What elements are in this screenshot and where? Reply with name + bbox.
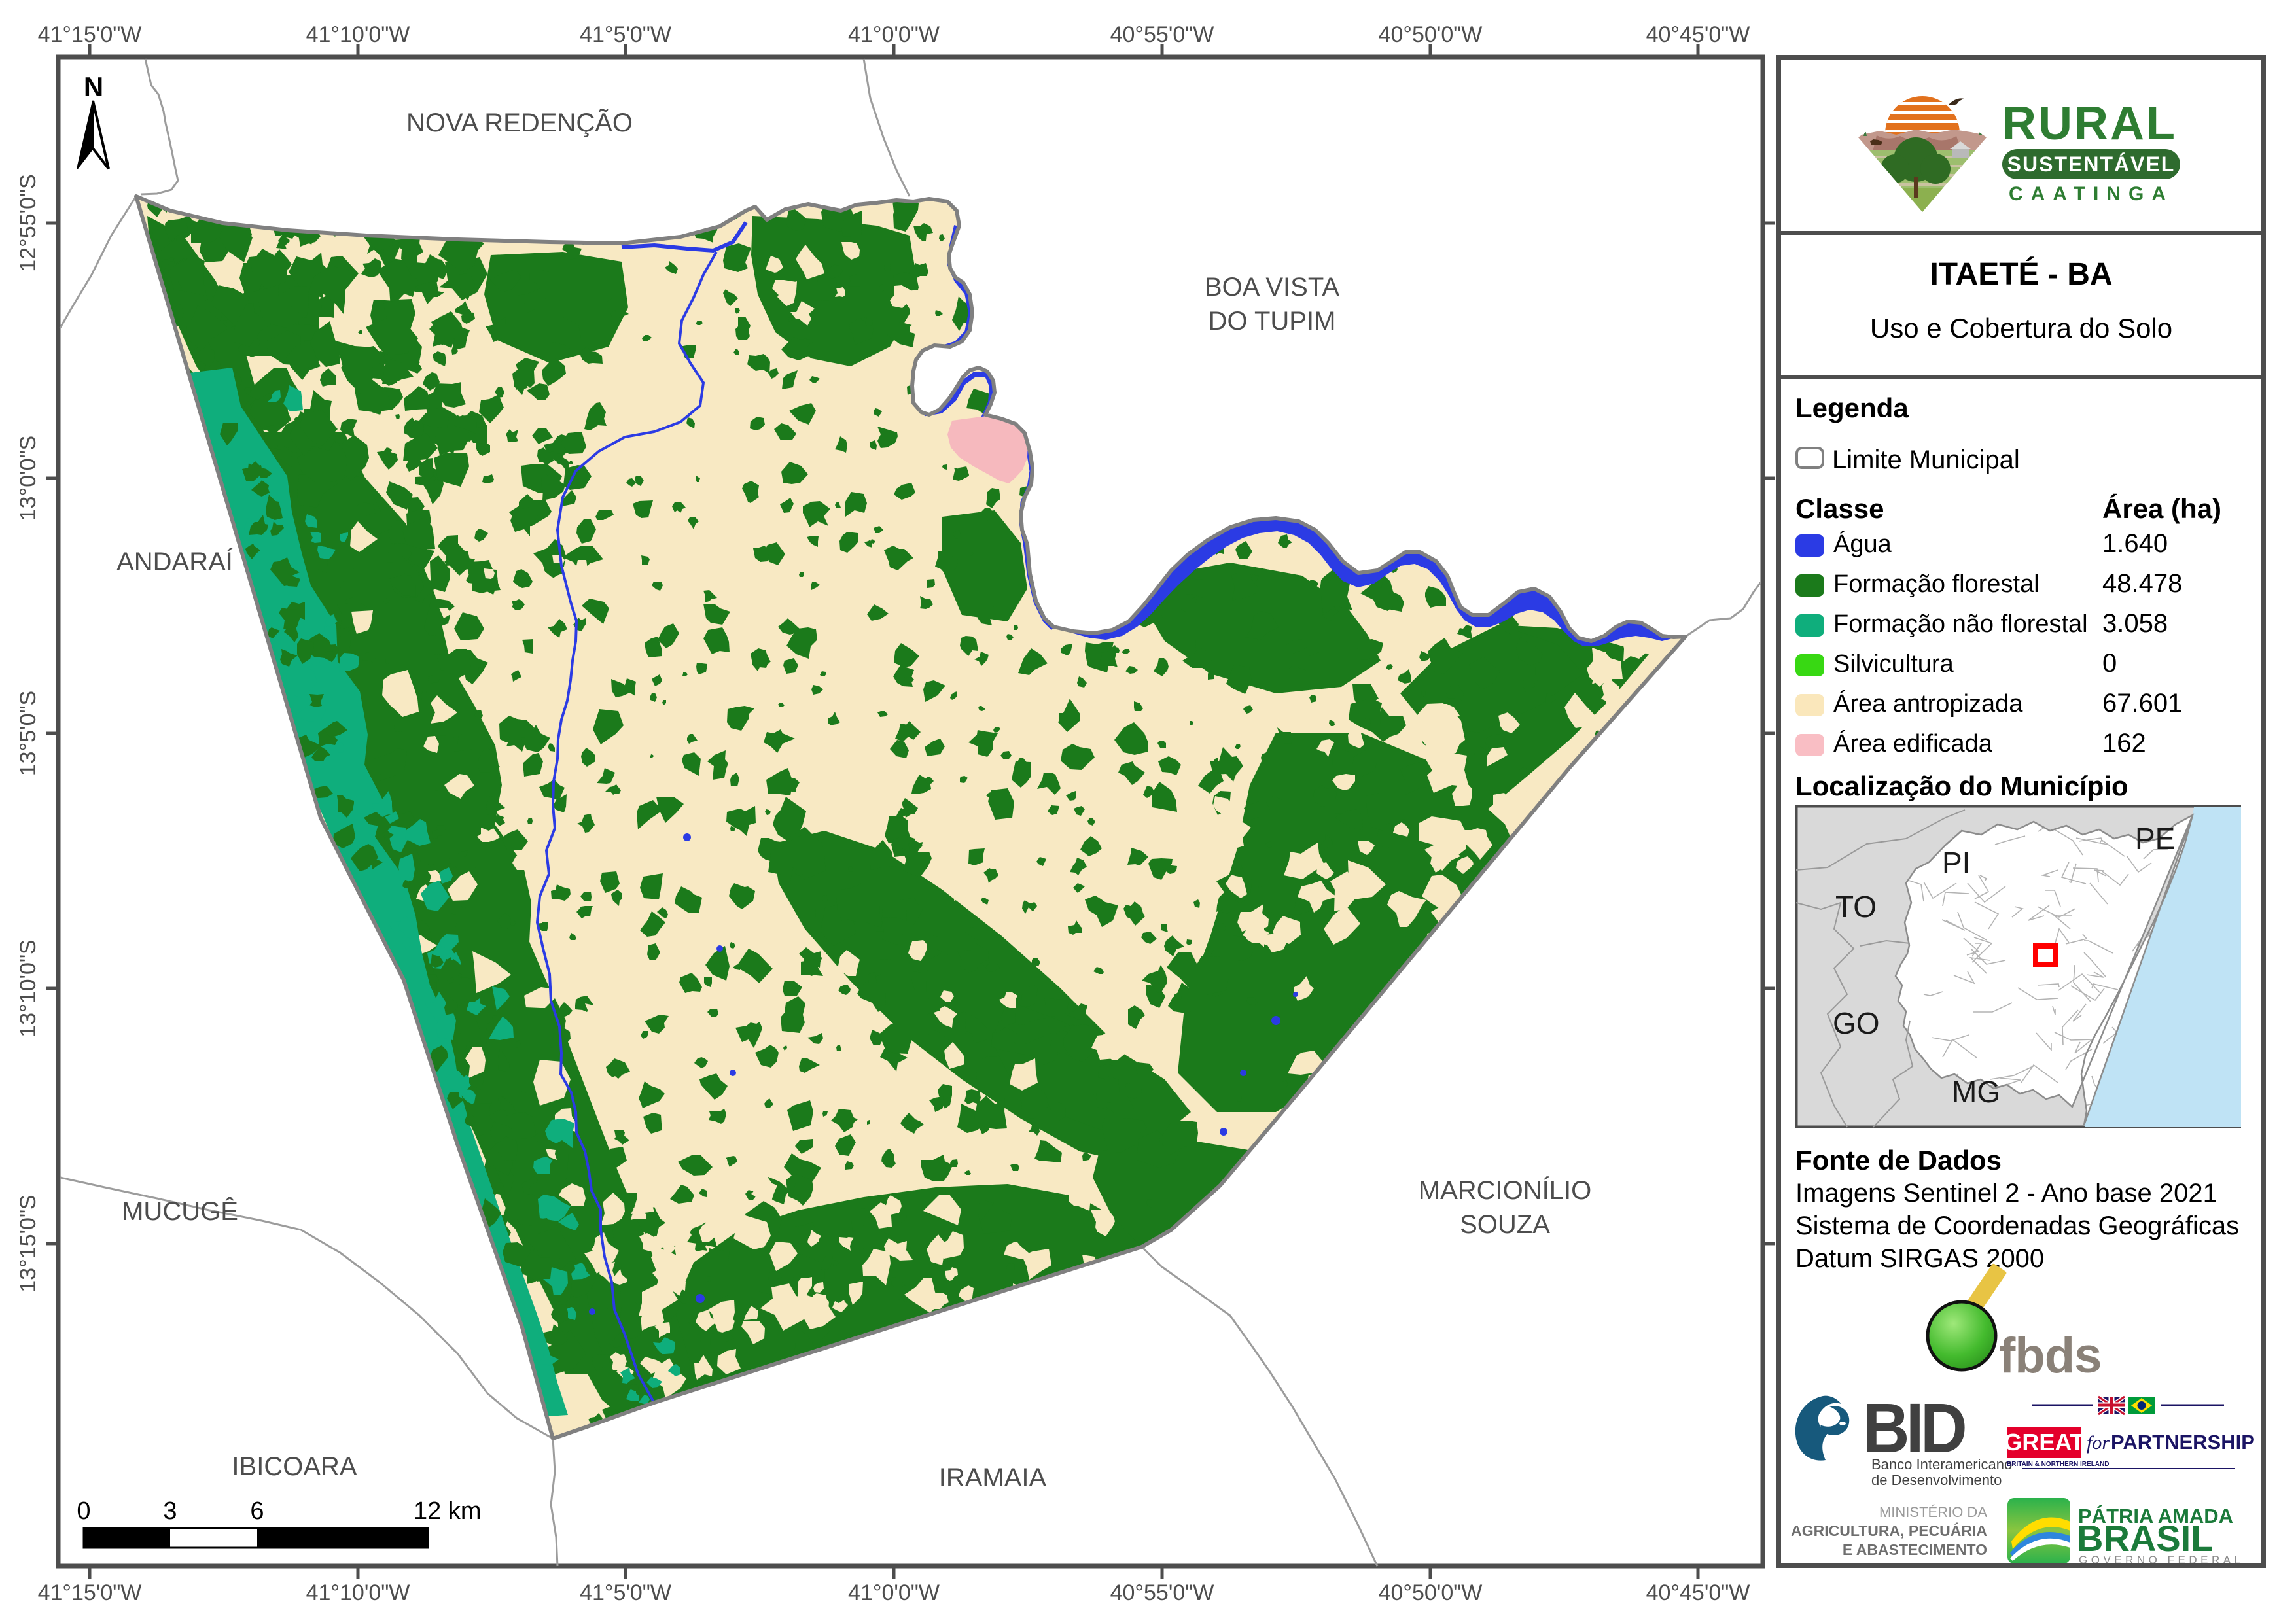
- svg-text:GREAT: GREAT: [2004, 1429, 2084, 1456]
- svg-text:13°5'0"S: 13°5'0"S: [16, 691, 41, 776]
- svg-text:Banco Interamericano: Banco Interamericano: [1871, 1456, 2012, 1473]
- svg-text:de Desenvolvimento: de Desenvolvimento: [1871, 1472, 2002, 1488]
- svg-text:41°10'0"W: 41°10'0"W: [306, 1580, 410, 1605]
- svg-text:0: 0: [77, 1497, 90, 1525]
- svg-text:12 km: 12 km: [414, 1497, 481, 1525]
- svg-text:N: N: [84, 71, 103, 102]
- svg-text:40°45'0"W: 40°45'0"W: [1646, 22, 1750, 47]
- svg-text:MUCUGÊ: MUCUGÊ: [122, 1196, 238, 1226]
- svg-text:MARCIONÍLIO: MARCIONÍLIO: [1419, 1176, 1591, 1205]
- svg-text:for: for: [2087, 1432, 2110, 1454]
- svg-text:IBICOARA: IBICOARA: [232, 1452, 357, 1481]
- svg-text:MG: MG: [1952, 1075, 2000, 1109]
- svg-text:BRITAIN & NORTHERN IRELAND: BRITAIN & NORTHERN IRELAND: [2007, 1461, 2109, 1468]
- svg-text:SOUZA: SOUZA: [1460, 1210, 1550, 1239]
- svg-text:12°55'0"S: 12°55'0"S: [16, 174, 41, 271]
- svg-text:40°50'0"W: 40°50'0"W: [1379, 22, 1483, 47]
- svg-text:DO TUPIM: DO TUPIM: [1209, 307, 1336, 336]
- svg-text:GOVERNO FEDERAL: GOVERNO FEDERAL: [2079, 1554, 2244, 1565]
- svg-text:BOA VISTA: BOA VISTA: [1205, 273, 1339, 302]
- svg-text:13°15'0"S: 13°15'0"S: [16, 1195, 41, 1292]
- svg-text:PI: PI: [1942, 846, 1970, 880]
- svg-text:TO: TO: [1835, 890, 1877, 924]
- svg-text:41°0'0"W: 41°0'0"W: [848, 22, 940, 47]
- svg-text:13°10'0"S: 13°10'0"S: [16, 939, 41, 1037]
- svg-text:41°10'0"W: 41°10'0"W: [306, 22, 410, 47]
- svg-text:ANDARAÍ: ANDARAÍ: [116, 547, 234, 576]
- svg-text:40°50'0"W: 40°50'0"W: [1379, 1580, 1483, 1605]
- svg-text:40°55'0"W: 40°55'0"W: [1110, 22, 1214, 47]
- svg-text:40°45'0"W: 40°45'0"W: [1646, 1580, 1750, 1605]
- svg-text:40°55'0"W: 40°55'0"W: [1110, 1580, 1214, 1605]
- svg-text:6: 6: [250, 1497, 264, 1525]
- svg-text:IRAMAIA: IRAMAIA: [939, 1463, 1047, 1492]
- svg-text:PARTNERSHIP: PARTNERSHIP: [2111, 1431, 2255, 1454]
- svg-text:41°15'0"W: 41°15'0"W: [38, 22, 142, 47]
- svg-text:GO: GO: [1833, 1006, 1880, 1040]
- svg-text:13°0'0"S: 13°0'0"S: [16, 436, 41, 521]
- svg-text:fbds: fbds: [1999, 1328, 2101, 1379]
- svg-text:PE: PE: [2135, 822, 2175, 856]
- svg-text:41°15'0"W: 41°15'0"W: [38, 1580, 142, 1605]
- svg-text:BRASIL: BRASIL: [2077, 1518, 2213, 1559]
- svg-text:NOVA REDENÇÃO: NOVA REDENÇÃO: [406, 108, 633, 137]
- svg-text:41°0'0"W: 41°0'0"W: [848, 1580, 940, 1605]
- svg-text:3: 3: [163, 1497, 177, 1525]
- svg-text:41°5'0"W: 41°5'0"W: [580, 1580, 671, 1605]
- svg-text:41°5'0"W: 41°5'0"W: [580, 22, 671, 47]
